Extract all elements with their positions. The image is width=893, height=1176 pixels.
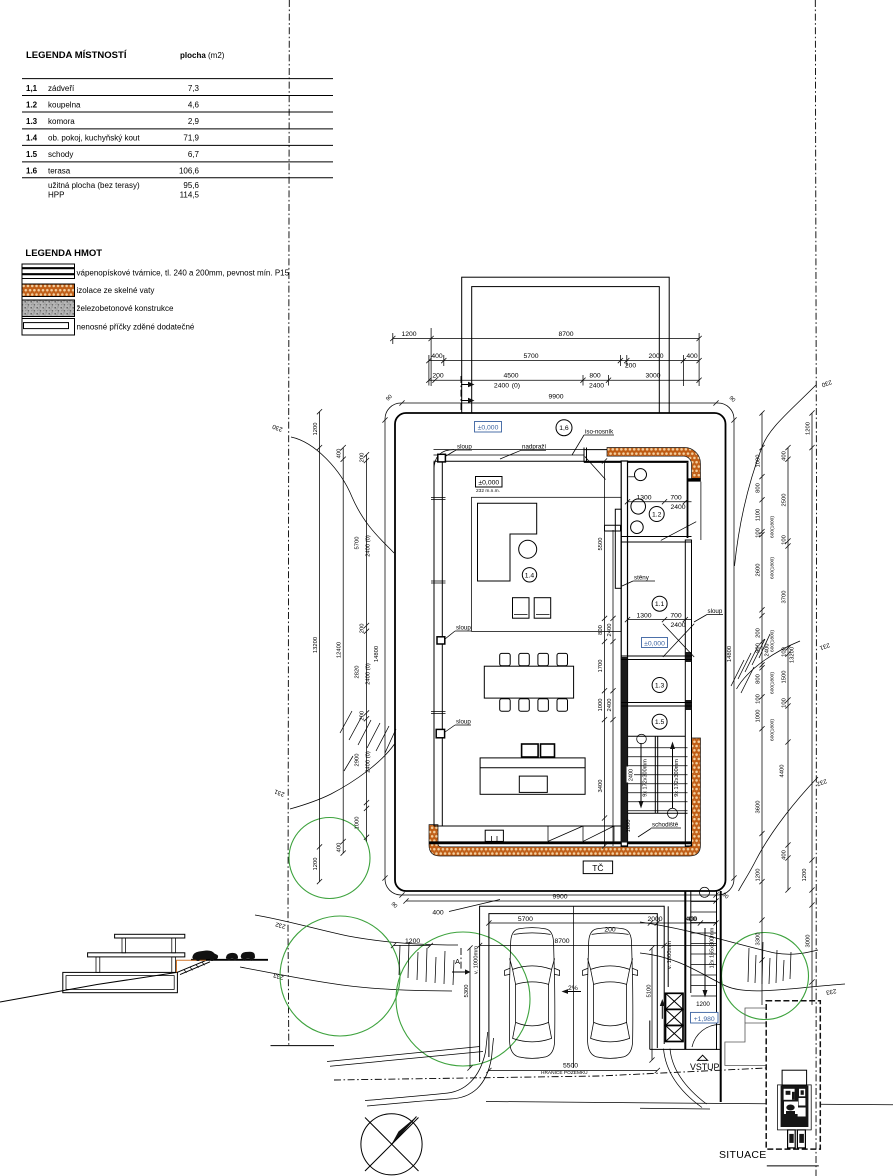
svg-text:114,5: 114,5 bbox=[180, 191, 200, 200]
svg-text:schody: schody bbox=[48, 150, 73, 159]
svg-text:sloup: sloup bbox=[457, 444, 472, 451]
svg-text:9900: 9900 bbox=[548, 394, 563, 401]
svg-text:v. 1000mm: v. 1000mm bbox=[474, 946, 480, 974]
svg-text:232 m.n.m.: 232 m.n.m. bbox=[476, 488, 500, 494]
svg-text:600(1800): 600(1800) bbox=[770, 557, 776, 579]
svg-text:2400 (0): 2400 (0) bbox=[494, 383, 520, 390]
svg-text:1200: 1200 bbox=[313, 858, 319, 871]
svg-text:1.6: 1.6 bbox=[26, 167, 38, 176]
svg-text:sloup: sloup bbox=[456, 625, 471, 632]
svg-text:1000: 1000 bbox=[355, 817, 361, 830]
svg-text:1.5: 1.5 bbox=[655, 719, 665, 726]
svg-text:VSTUP: VSTUP bbox=[690, 1062, 719, 1072]
svg-text:400: 400 bbox=[431, 353, 443, 360]
svg-text:2600: 2600 bbox=[756, 564, 762, 577]
svg-text:1000: 1000 bbox=[756, 710, 762, 723]
svg-text:3700: 3700 bbox=[782, 591, 788, 604]
svg-text:schodiště: schodiště bbox=[652, 822, 679, 829]
svg-text:71,9: 71,9 bbox=[183, 134, 199, 143]
svg-text:1.2: 1.2 bbox=[652, 512, 662, 519]
svg-text:HPP: HPP bbox=[48, 191, 64, 200]
svg-text:5700: 5700 bbox=[355, 537, 361, 550]
svg-text:200: 200 bbox=[756, 628, 762, 638]
svg-text:±0,000: ±0,000 bbox=[478, 480, 499, 487]
svg-text:1300: 1300 bbox=[636, 613, 651, 620]
svg-text:zádveří: zádveří bbox=[48, 84, 75, 93]
svg-text:5500: 5500 bbox=[563, 1063, 578, 1070]
svg-text:2%: 2% bbox=[568, 985, 578, 992]
svg-text:200: 200 bbox=[625, 363, 637, 370]
svg-text:1.3: 1.3 bbox=[26, 117, 38, 126]
svg-text:8700: 8700 bbox=[558, 331, 573, 338]
svg-text:800: 800 bbox=[589, 373, 601, 380]
svg-text:14800: 14800 bbox=[374, 646, 380, 662]
svg-text:100: 100 bbox=[782, 647, 788, 657]
svg-text:1.5: 1.5 bbox=[26, 150, 38, 159]
svg-text:5500: 5500 bbox=[598, 538, 604, 551]
svg-text:1200: 1200 bbox=[405, 938, 420, 945]
svg-text:SITUACE: SITUACE bbox=[719, 1149, 767, 1161]
svg-text:4400: 4400 bbox=[780, 765, 786, 778]
svg-text:sloup: sloup bbox=[456, 719, 471, 726]
svg-text:200: 200 bbox=[360, 711, 366, 721]
svg-text:komora: komora bbox=[48, 117, 75, 126]
svg-text:200: 200 bbox=[360, 624, 366, 634]
svg-text:izolace ze skelné vaty: izolace ze skelné vaty bbox=[77, 286, 155, 295]
svg-text:400: 400 bbox=[337, 449, 343, 459]
svg-text:koupelna: koupelna bbox=[48, 101, 81, 110]
svg-text:1200: 1200 bbox=[401, 331, 416, 338]
svg-text:2000: 2000 bbox=[647, 916, 662, 923]
svg-text:2400: 2400 bbox=[607, 699, 613, 712]
svg-text:3000: 3000 bbox=[645, 373, 660, 380]
svg-text:3600: 3600 bbox=[756, 801, 762, 814]
svg-text:1200: 1200 bbox=[313, 423, 319, 436]
svg-text:1000: 1000 bbox=[598, 699, 604, 712]
svg-text:13200: 13200 bbox=[790, 647, 796, 663]
svg-text:800: 800 bbox=[756, 674, 762, 684]
svg-text:600(1800): 600(1800) bbox=[770, 719, 776, 741]
svg-text:400: 400 bbox=[686, 353, 698, 360]
svg-text:800: 800 bbox=[756, 483, 762, 493]
svg-text:13200: 13200 bbox=[313, 637, 319, 653]
svg-text:400: 400 bbox=[782, 850, 788, 860]
svg-text:1200: 1200 bbox=[806, 422, 812, 435]
svg-text:2500: 2500 bbox=[782, 494, 788, 507]
svg-text:plocha (m2): plocha (m2) bbox=[180, 51, 225, 60]
svg-text:2000: 2000 bbox=[648, 353, 663, 360]
svg-text:2,9: 2,9 bbox=[188, 117, 200, 126]
svg-text:2820: 2820 bbox=[355, 666, 361, 679]
svg-text:2400: 2400 bbox=[670, 504, 685, 511]
svg-text:iso-nosník: iso-nosník bbox=[585, 429, 614, 436]
svg-text:900: 900 bbox=[756, 643, 762, 653]
svg-text:7,3: 7,3 bbox=[188, 84, 200, 93]
svg-text:sloup: sloup bbox=[708, 608, 723, 615]
svg-text:400: 400 bbox=[432, 910, 444, 917]
svg-text:400: 400 bbox=[687, 916, 698, 923]
svg-text:1200: 1200 bbox=[756, 869, 762, 882]
svg-text:5300: 5300 bbox=[464, 985, 470, 998]
svg-text:2400: 2400 bbox=[629, 769, 635, 781]
svg-text:2900: 2900 bbox=[355, 754, 361, 767]
svg-text:1200: 1200 bbox=[802, 869, 808, 882]
svg-text:±0,000: ±0,000 bbox=[644, 641, 665, 648]
svg-text:400: 400 bbox=[337, 843, 343, 853]
svg-text:100: 100 bbox=[756, 694, 762, 704]
svg-text:1.2: 1.2 bbox=[26, 101, 38, 110]
svg-text:1300: 1300 bbox=[636, 495, 651, 502]
svg-text:12x 165x300mm: 12x 165x300mm bbox=[710, 927, 716, 968]
svg-text:2400: 2400 bbox=[670, 622, 685, 629]
svg-text:14800: 14800 bbox=[727, 646, 733, 662]
svg-text:LEGENDA HMOT: LEGENDA HMOT bbox=[25, 248, 102, 259]
svg-text:TČ: TČ bbox=[592, 863, 603, 873]
svg-text:9x 172x300mm: 9x 172x300mm bbox=[674, 759, 680, 797]
svg-text:5700: 5700 bbox=[518, 916, 533, 923]
svg-text:2400 (0): 2400 (0) bbox=[366, 535, 372, 557]
svg-text:1.4: 1.4 bbox=[525, 572, 535, 579]
svg-text:8700: 8700 bbox=[554, 938, 569, 945]
svg-text:1000: 1000 bbox=[756, 455, 762, 468]
svg-text:200: 200 bbox=[432, 373, 444, 380]
svg-text:3300: 3300 bbox=[756, 933, 762, 946]
svg-text:700: 700 bbox=[670, 495, 682, 502]
svg-text:vápenopískové tvárnice, tl. 24: vápenopískové tvárnice, tl. 240 a 200mm,… bbox=[77, 269, 290, 278]
svg-text:1000: 1000 bbox=[626, 820, 632, 833]
svg-text:100: 100 bbox=[756, 528, 762, 538]
svg-text:LEGENDA MÍSTNOSTÍ: LEGENDA MÍSTNOSTÍ bbox=[26, 50, 127, 61]
svg-text:4500: 4500 bbox=[503, 373, 518, 380]
svg-text:800: 800 bbox=[598, 625, 604, 635]
svg-text:užitná plocha (bez terasy): užitná plocha (bez terasy) bbox=[48, 181, 140, 190]
svg-text:železobetonové konstrukce: železobetonové konstrukce bbox=[77, 304, 175, 313]
svg-text:5700: 5700 bbox=[523, 353, 538, 360]
svg-text:nenosné příčky zděné dodatečné: nenosné příčky zděné dodatečné bbox=[77, 323, 195, 332]
svg-text:2400: 2400 bbox=[589, 383, 604, 390]
svg-text:600(1800): 600(1800) bbox=[770, 630, 776, 652]
svg-text:9x 172x300mm: 9x 172x300mm bbox=[643, 759, 649, 797]
svg-text:A: A bbox=[455, 957, 460, 966]
svg-text:9900: 9900 bbox=[552, 894, 567, 901]
svg-text:±0,000: ±0,000 bbox=[478, 425, 499, 432]
svg-text:1,1: 1,1 bbox=[26, 84, 38, 93]
svg-text:6,7: 6,7 bbox=[188, 150, 200, 159]
svg-text:+1,980: +1,980 bbox=[694, 1016, 715, 1023]
svg-text:100: 100 bbox=[782, 535, 788, 545]
svg-text:nadpraží: nadpraží bbox=[522, 444, 546, 451]
svg-text:1.4: 1.4 bbox=[26, 134, 38, 143]
svg-text:stěny: stěny bbox=[634, 575, 650, 582]
svg-text:12400: 12400 bbox=[337, 642, 343, 658]
svg-text:2400: 2400 bbox=[607, 624, 613, 637]
svg-text:1.1: 1.1 bbox=[655, 601, 665, 608]
svg-text:terasa: terasa bbox=[48, 167, 71, 176]
svg-text:2400 (0): 2400 (0) bbox=[366, 751, 372, 773]
svg-text:3000: 3000 bbox=[806, 935, 812, 948]
svg-text:400: 400 bbox=[782, 451, 788, 461]
svg-text:600(1800): 600(1800) bbox=[770, 672, 776, 694]
svg-text:106,6: 106,6 bbox=[179, 167, 200, 176]
svg-text:1.3: 1.3 bbox=[655, 683, 665, 690]
svg-text:1700: 1700 bbox=[598, 660, 604, 673]
svg-text:1100: 1100 bbox=[756, 509, 762, 521]
svg-text:1200: 1200 bbox=[696, 1001, 710, 1008]
svg-text:700: 700 bbox=[670, 613, 682, 620]
svg-text:95,6: 95,6 bbox=[183, 181, 199, 190]
svg-text:4,6: 4,6 bbox=[188, 101, 200, 110]
svg-text:HRANICE POZEMKU: HRANICE POZEMKU bbox=[541, 1070, 588, 1076]
svg-text:200: 200 bbox=[360, 453, 366, 463]
svg-text:ob. pokoj, kuchyňský kout: ob. pokoj, kuchyňský kout bbox=[48, 134, 140, 143]
svg-text:2400 (0): 2400 (0) bbox=[366, 663, 372, 685]
svg-text:1,6: 1,6 bbox=[559, 425, 569, 432]
svg-text:600(1800): 600(1800) bbox=[770, 516, 776, 538]
svg-text:1500: 1500 bbox=[782, 671, 788, 684]
svg-text:100: 100 bbox=[782, 698, 788, 708]
svg-text:3400: 3400 bbox=[598, 780, 604, 793]
